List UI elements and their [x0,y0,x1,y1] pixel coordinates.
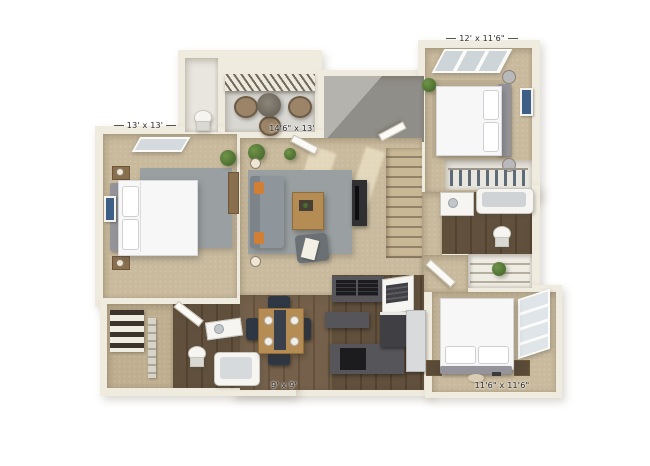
balcony-trellis [225,74,315,91]
label-living-room-text: 14'6" x 13' [269,124,315,133]
dining-plate-1 [264,316,273,325]
small-bath-toilet-tank [196,121,210,131]
walkin-closet-shelves [110,310,144,352]
label-bedroom3-text: 11'6" x 11'6" [475,381,530,390]
master-pillow-1 [122,186,139,217]
dim-line-right [166,125,176,126]
master-bath-toilet-tank [190,357,204,367]
bedroom3-headboard [440,366,512,374]
label-bedroom2: 12' x 11'6" [442,34,522,44]
patio-chair-left [234,96,258,118]
sofa-pillow-orange-2 [254,232,264,244]
label-dining: 9' x 9' [258,381,310,391]
linen-plant [492,262,506,276]
floorplan-canvas: 13' x 13' 14'6" x 13' 12' x 11'6" 9' x 9… [0,0,650,466]
staircase-steps [386,148,422,258]
label-dining-text: 9' x 9' [271,381,297,390]
bedroom2-plant [422,78,436,92]
master-pillow-2 [122,219,139,250]
dim-line-left [114,125,124,126]
label-bedroom2-text: 12' x 11'6" [459,34,505,43]
master-bath-sink [214,324,224,334]
kitchen-oven [340,348,366,370]
bath2-sink [448,198,458,208]
bedroom2-window [432,49,513,73]
kitchen-island [380,312,406,347]
dining-table-runner [274,310,286,350]
dining-plate-2 [290,316,299,325]
master-plant [220,150,236,166]
master-bath-tub-inner [220,357,252,379]
dim-line-left2 [446,38,456,39]
bedroom3-nightstand-right [514,360,530,376]
patio-table [257,93,281,117]
kitchen-cooktop-2 [358,280,378,296]
master-dresser [228,172,239,214]
living-lamp-top [250,158,261,169]
living-lamp-bottom [250,256,261,267]
bedroom3-window [518,289,550,359]
coffee-table [292,192,324,230]
master-duvet-fold [140,182,141,252]
walkin-wire-rack [148,318,156,378]
bedroom3-pillow-2 [478,346,509,364]
kitchen-upper-cabinets [325,312,369,328]
living-plant-2 [284,148,296,160]
kitchen-bar-vent [386,282,408,303]
coffee-table-plant [303,203,308,208]
dining-plate-3 [264,337,273,346]
closet2-clothes [450,170,528,186]
master-wall-art [104,196,116,222]
tv-screen [355,186,359,220]
bedroom2-speaker-top [502,70,516,84]
master-lamp-top [116,168,124,176]
master-lamp-bottom [116,259,124,267]
label-bedroom3: 11'6" x 11'6" [458,381,546,391]
dining-plate-4 [290,337,299,346]
kitchen-cooktop-1 [336,280,356,296]
dim-line-right2 [508,38,518,39]
bedroom2-pillow-1 [483,90,499,120]
bedroom2-pillow-2 [483,122,499,152]
refrigerator [406,310,426,372]
bedroom3-remote [492,372,501,376]
label-master-bedroom: 13' x 13' [103,121,187,131]
label-living-room: 14'6" x 13' [252,124,332,134]
patio-chair-right [288,96,312,118]
master-window [132,137,191,152]
bedroom2-wall-art [520,88,533,116]
label-master-bedroom-text: 13' x 13' [127,121,163,130]
bath2-toilet-tank [495,237,509,247]
bedroom3-pillow-1 [445,346,476,364]
sofa-pillow-orange-1 [254,182,264,194]
bath2-tub-inner [482,192,526,207]
